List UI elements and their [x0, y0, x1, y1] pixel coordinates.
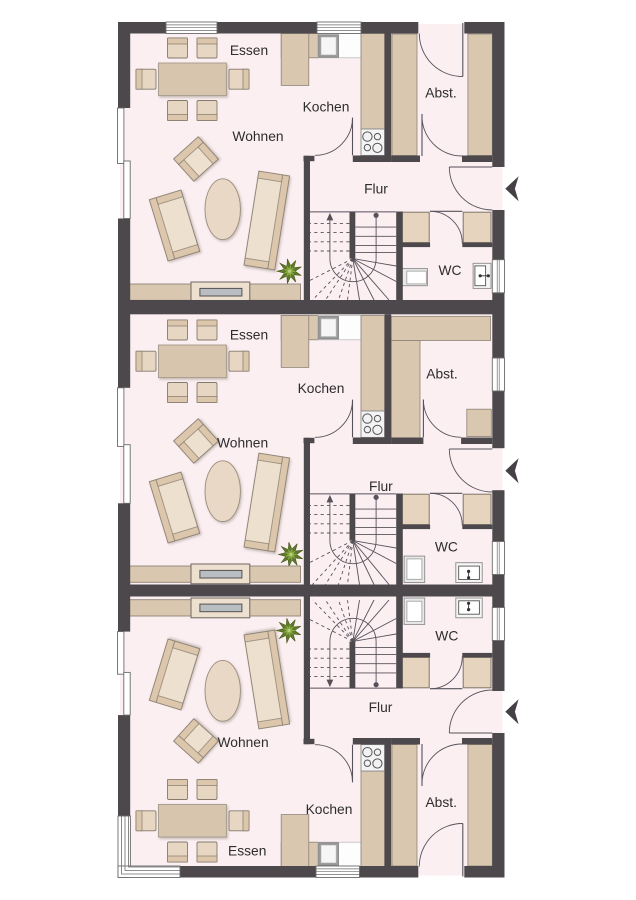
svg-text:Flur: Flur: [369, 700, 393, 715]
svg-text:Wohnen: Wohnen: [217, 436, 268, 451]
svg-text:Essen: Essen: [230, 328, 268, 343]
svg-text:WC: WC: [435, 540, 458, 555]
svg-text:Wohnen: Wohnen: [218, 735, 269, 750]
svg-text:Kochen: Kochen: [306, 802, 353, 817]
svg-text:Essen: Essen: [230, 43, 268, 58]
svg-text:Flur: Flur: [364, 182, 388, 197]
svg-text:Kochen: Kochen: [298, 381, 345, 396]
svg-text:Abst.: Abst.: [426, 367, 457, 382]
svg-text:WC: WC: [439, 263, 462, 278]
svg-text:Flur: Flur: [369, 479, 393, 494]
svg-text:Abst.: Abst.: [425, 86, 456, 101]
svg-text:Essen: Essen: [228, 844, 266, 859]
svg-text:WC: WC: [435, 628, 458, 643]
svg-text:Kochen: Kochen: [303, 100, 350, 115]
svg-text:Abst.: Abst.: [425, 795, 456, 810]
svg-text:Wohnen: Wohnen: [232, 129, 283, 144]
